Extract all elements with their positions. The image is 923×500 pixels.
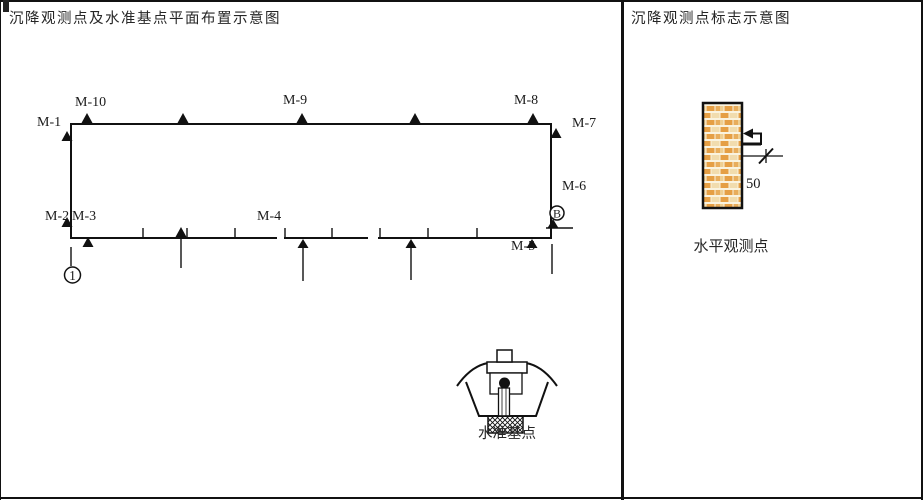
point-triangle bbox=[298, 239, 309, 248]
label-m5: M-5 bbox=[511, 239, 535, 254]
benchmark-cap bbox=[497, 350, 512, 362]
point-triangle bbox=[406, 239, 417, 248]
label-m6: M-6 bbox=[562, 179, 586, 194]
point-triangle bbox=[176, 227, 187, 237]
wall-opening-ticks bbox=[143, 228, 477, 238]
point-labels: M-1 M-10 M-9 M-8 M-7 M-6 M-2 M-3 M-4 M-5 bbox=[37, 93, 596, 254]
benchmark-collar bbox=[487, 362, 527, 373]
observation-point-triangles bbox=[62, 113, 562, 248]
grid-leader-lines bbox=[71, 228, 573, 281]
point-triangle bbox=[528, 113, 539, 123]
grid-bubble-row-label: B bbox=[553, 207, 561, 221]
benchmark-label: 水准基点 bbox=[478, 425, 536, 442]
benchmark-point-head bbox=[499, 378, 510, 389]
label-m1: M-1 bbox=[37, 115, 61, 130]
label-m10: M-10 bbox=[75, 95, 106, 110]
point-triangle bbox=[178, 113, 189, 123]
benchmark-rod bbox=[499, 388, 510, 416]
point-triangle bbox=[410, 113, 421, 123]
drawing-sheet: 沉降观测点及水准基点平面布置示意图 沉降观测点标志示意图 bbox=[0, 0, 923, 500]
grid-bubble-column-label: 1 bbox=[69, 268, 76, 283]
dimension-value: 50 bbox=[746, 176, 761, 192]
rod-arrowhead bbox=[743, 129, 753, 139]
benchmark-detail: 水准基点 bbox=[457, 350, 557, 442]
grid-bubble-column-1: 1 bbox=[65, 267, 81, 283]
label-m3: M-3 bbox=[72, 209, 96, 224]
label-m8: M-8 bbox=[514, 93, 538, 108]
label-m9: M-9 bbox=[283, 93, 307, 108]
brick-wall bbox=[703, 103, 742, 208]
embedded-marker-rod bbox=[742, 129, 761, 146]
benchmark-dome-arc-right bbox=[526, 363, 557, 386]
building-outline bbox=[70, 123, 552, 239]
plan-drawing-svg: 1 B M-1 M-10 M-9 M-8 M-7 M-6 M-2 M-3 M-4… bbox=[0, 0, 923, 500]
label-m4: M-4 bbox=[257, 209, 281, 224]
point-triangle bbox=[82, 113, 93, 123]
marker-detail: 50 水平观测点 bbox=[693, 103, 783, 255]
marker-label: 水平观测点 bbox=[693, 237, 768, 255]
point-triangle-m7 bbox=[551, 128, 562, 138]
grid-bubble-row-b: B bbox=[550, 206, 564, 221]
label-m7: M-7 bbox=[572, 116, 596, 131]
benchmark-dome-arc-left bbox=[457, 363, 488, 386]
label-m2: M-2 bbox=[45, 209, 69, 224]
point-triangle bbox=[297, 113, 308, 123]
dimension-line bbox=[742, 149, 783, 164]
